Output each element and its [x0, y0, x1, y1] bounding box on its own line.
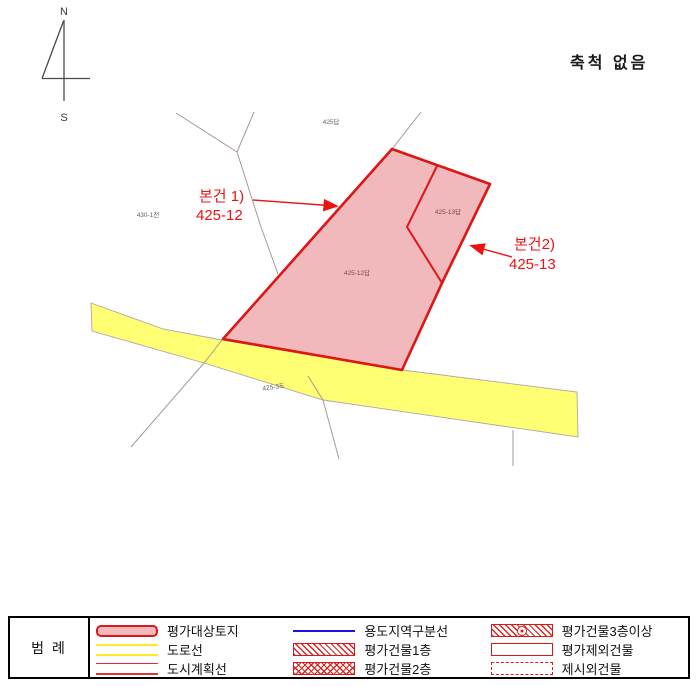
zoning-line-symbol	[293, 624, 355, 637]
subject1-parcel-number: 425-12	[196, 207, 243, 224]
legend-item-building-1f: 평가건물1층	[293, 640, 490, 659]
legend-item-building-2f: 평가건물2층	[293, 659, 490, 678]
building-1f-symbol	[293, 643, 355, 656]
subject2-arrow	[472, 246, 512, 257]
subject1-title: 본건 1)	[199, 188, 244, 205]
compass-north-label: N	[60, 6, 68, 18]
parcel-label-subject1: 425-12답	[344, 269, 370, 277]
legend-item-excluded-building: 평가제외건물	[491, 640, 688, 659]
parcel-label-subject2: 425-13답	[435, 208, 461, 216]
legend-item-city-plan-line: 도시계획선	[96, 659, 293, 678]
unlisted-building-symbol	[491, 662, 553, 675]
legend-item-zoning-line: 용도지역구분선	[293, 621, 490, 640]
legend-box: 범 례 평가대상토지 도로선 도시계획선 용도지역구분선	[8, 616, 690, 679]
subject2-parcel-number: 425-13	[509, 256, 556, 273]
legend-label: 용도지역구분선	[364, 621, 448, 640]
subject2-title: 본건2)	[514, 236, 555, 253]
cadastral-map-canvas: N S 425답 430-1전 425-12답 425-13답 425-3도 본…	[0, 0, 700, 610]
legend-item-building-3f: 평가건물3층이상	[491, 621, 688, 640]
legend-title: 범 례	[10, 618, 90, 677]
building-3f-symbol	[491, 624, 553, 637]
legend-label: 평가대상토지	[167, 621, 239, 640]
building-3f-circle-icon	[517, 626, 527, 636]
parcel-label-north: 425답	[323, 118, 340, 126]
appraisal-map-page: 축척 없음 N S	[0, 0, 700, 686]
legend-label: 평가제외건물	[562, 640, 634, 659]
legend-label: 평가건물1층	[364, 640, 431, 659]
subject-parcel-symbol	[96, 625, 158, 637]
compass-south-label: S	[60, 112, 67, 124]
legend-item-unlisted-building: 제시외건물	[491, 659, 688, 678]
parcel-label-west: 430-1전	[137, 210, 160, 219]
north-arrow-icon	[42, 20, 90, 101]
subject1-arrow	[253, 200, 336, 206]
legend-item-road-line: 도로선	[96, 640, 293, 659]
legend-label: 평가건물3층이상	[562, 621, 653, 640]
legend-label: 도시계획선	[167, 659, 227, 678]
legend-label: 평가건물2층	[364, 659, 431, 678]
building-2f-symbol	[293, 662, 355, 675]
legend-label: 제시외건물	[562, 659, 622, 678]
excluded-building-symbol	[491, 643, 553, 656]
legend-item-subject-parcel: 평가대상토지	[96, 621, 293, 640]
city-plan-line-symbol	[96, 663, 158, 675]
parcel-label-road: 425-3도	[262, 381, 286, 392]
subject-parcel-polygon	[223, 149, 490, 370]
road-line-symbol	[96, 644, 158, 656]
legend-label: 도로선	[167, 640, 203, 659]
legend-grid: 평가대상토지 도로선 도시계획선 용도지역구분선 평가건물1층	[90, 618, 688, 677]
